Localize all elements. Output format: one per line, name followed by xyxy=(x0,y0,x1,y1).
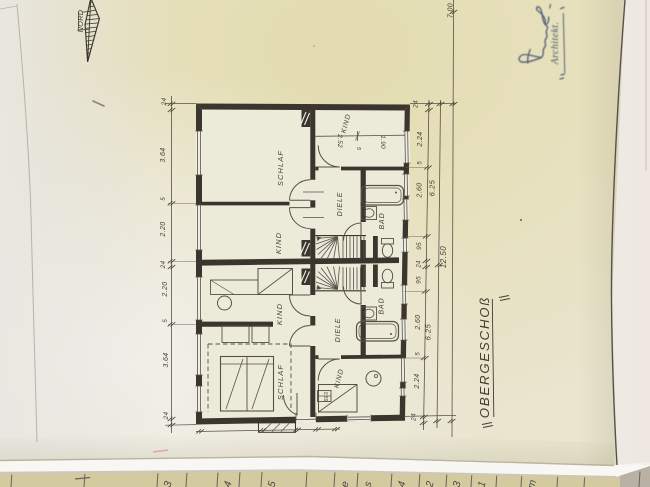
svg-text:DIELE: DIELE xyxy=(337,192,344,217)
svg-text:BAD: BAD xyxy=(379,297,386,314)
svg-text:3.64: 3.64 xyxy=(160,147,167,162)
svg-text:6.25: 6.25 xyxy=(428,179,437,196)
svg-text:3.64: 3.64 xyxy=(163,352,170,367)
svg-text:24: 24 xyxy=(411,413,418,422)
svg-text:24: 24 xyxy=(163,412,170,421)
svg-text:95: 95 xyxy=(416,276,423,284)
svg-text:SCHLAF: SCHLAF xyxy=(276,364,285,400)
svg-text:1.90: 1.90 xyxy=(379,135,386,149)
svg-text:2.52: 2.52 xyxy=(336,133,343,148)
svg-text:24: 24 xyxy=(160,261,167,270)
svg-text:Architekt.: Architekt. xyxy=(550,22,561,66)
svg-text:OBERGESCHOß: OBERGESCHOß xyxy=(477,296,492,418)
svg-text:24: 24 xyxy=(413,100,420,109)
svg-text:24: 24 xyxy=(161,98,168,107)
svg-text:2.24: 2.24 xyxy=(417,131,424,147)
svg-text:KIND: KIND xyxy=(274,232,283,254)
svg-text:0.55: 0.55 xyxy=(322,392,328,402)
svg-text:2.60: 2.60 xyxy=(417,182,424,198)
svg-text:DIELE: DIELE xyxy=(335,318,342,343)
svg-text:2.20: 2.20 xyxy=(162,281,169,297)
svg-text:NORD: NORD xyxy=(76,10,85,33)
svg-text:2.60: 2.60 xyxy=(415,314,422,330)
svg-text:KIND: KIND xyxy=(275,303,284,325)
svg-text:SCHLAF: SCHLAF xyxy=(276,150,285,186)
svg-text:2.20: 2.20 xyxy=(160,221,167,237)
svg-text:2.24: 2.24 xyxy=(414,373,421,389)
svg-text:6.25: 6.25 xyxy=(424,323,433,340)
svg-text:95: 95 xyxy=(416,242,423,250)
svg-text:7.00: 7.00 xyxy=(448,3,455,18)
svg-text:12.50: 12.50 xyxy=(439,246,448,269)
svg-text:BAD: BAD xyxy=(379,212,386,229)
svg-text:24: 24 xyxy=(417,260,423,269)
